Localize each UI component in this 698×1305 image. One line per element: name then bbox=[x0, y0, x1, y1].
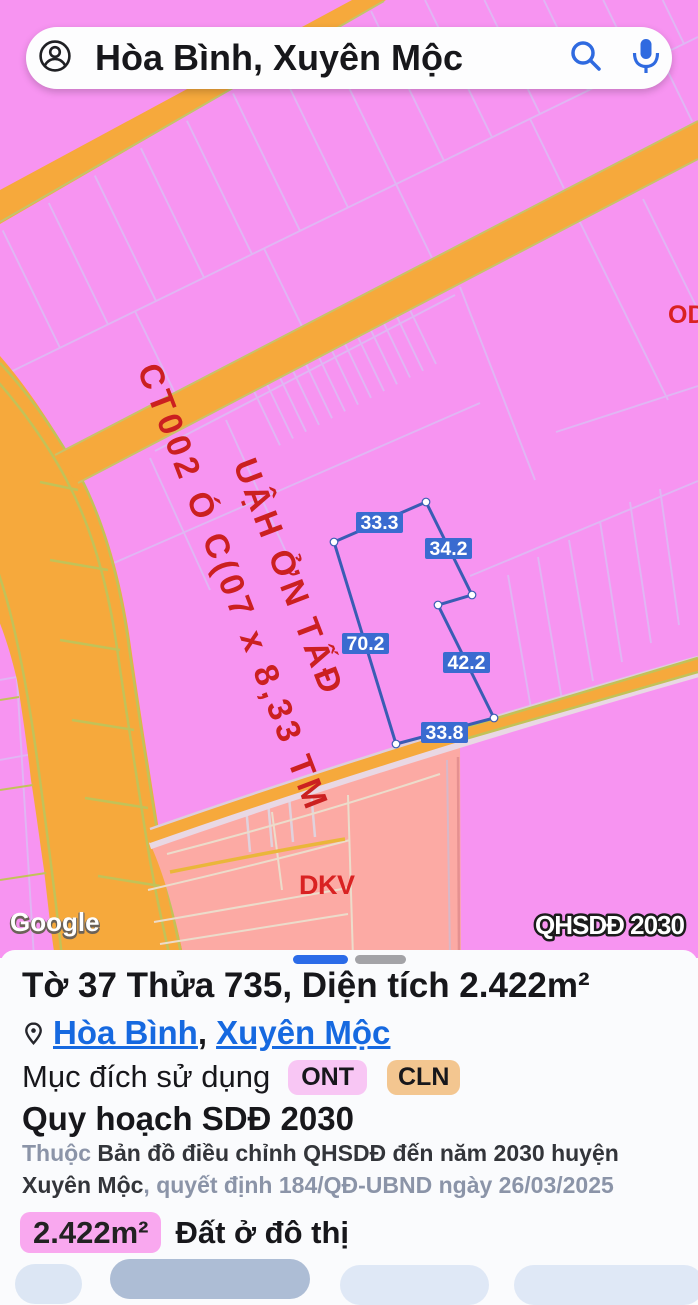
svg-text:33.8: 33.8 bbox=[426, 722, 464, 744]
svg-text:Google: Google bbox=[10, 907, 100, 937]
svg-text:DKV: DKV bbox=[299, 870, 355, 900]
svg-text:QHSDĐ 2030: QHSDĐ 2030 bbox=[535, 910, 684, 940]
svg-text:OD: OD bbox=[668, 301, 698, 329]
svg-text:33.3: 33.3 bbox=[361, 512, 399, 534]
svg-text:42.2: 42.2 bbox=[448, 652, 486, 674]
svg-text:70.2: 70.2 bbox=[347, 633, 385, 655]
svg-text:34.2: 34.2 bbox=[430, 538, 468, 560]
